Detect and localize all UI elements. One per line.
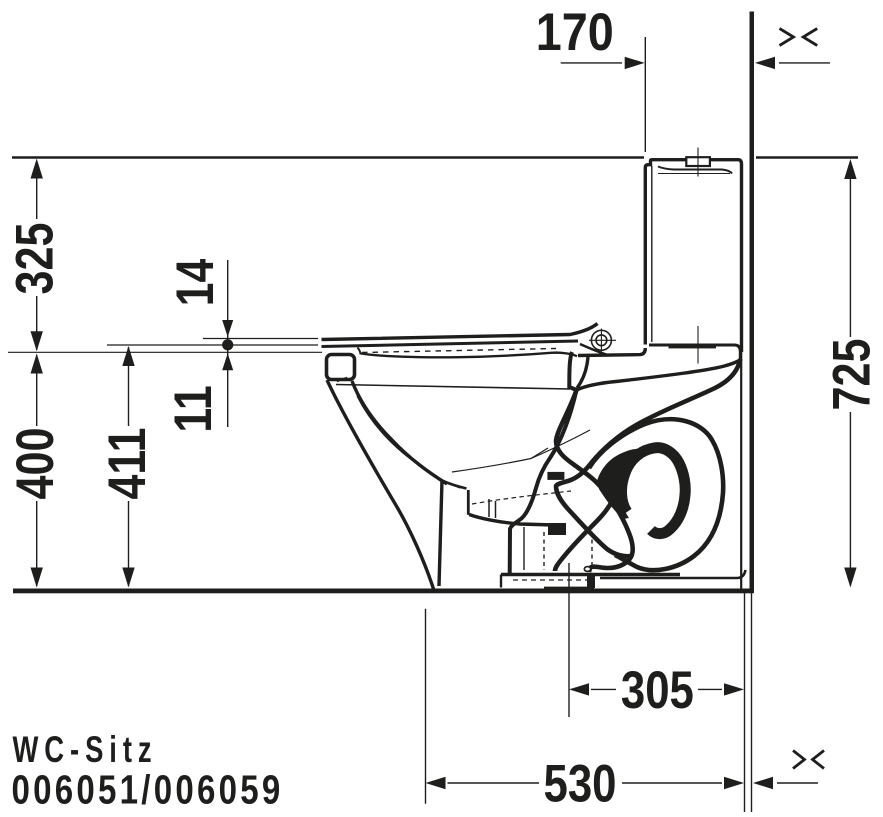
svg-text:11: 11 [164,385,223,433]
svg-text:170: 170 [536,3,614,62]
svg-text:411: 411 [98,428,157,500]
svg-text:006051/006059: 006051/006059 [12,767,284,813]
svg-text:305: 305 [621,661,694,720]
svg-text:WC-Sitz: WC-Sitz [13,729,158,770]
svg-text:14: 14 [166,258,225,306]
svg-text:400: 400 [6,428,65,500]
svg-text:725: 725 [823,339,882,411]
svg-text:325: 325 [6,223,65,295]
svg-text:530: 530 [544,755,617,814]
